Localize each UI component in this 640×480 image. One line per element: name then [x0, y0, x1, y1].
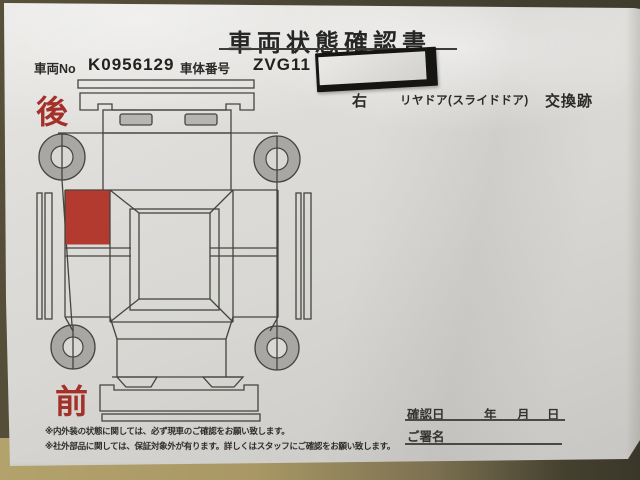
signature-underline: [405, 443, 562, 445]
note-line-2: ※社外部品に関しては、保証対象外が有ります。詳しくはスタッフにご確認をお願い致し…: [45, 440, 395, 452]
damage-side: 右: [352, 90, 367, 111]
date-underline: [405, 419, 565, 421]
vehicle-no-value: K0956129: [88, 55, 174, 75]
front-direction-label: 前: [55, 375, 88, 423]
photo-of-vehicle-condition-sheet: 車両状態確認書 車両No K0956129 車体番号 ZVG11 右 リヤドア(…: [0, 0, 640, 480]
damage-finding: 交換跡: [545, 90, 593, 111]
damage-part: リヤドア(スライドドア): [400, 92, 529, 108]
redaction-sticker: [315, 47, 438, 93]
rear-direction-label: 後: [36, 87, 68, 133]
white-label-sticker: [318, 51, 426, 85]
vehicle-no-label: 車両No: [34, 58, 76, 77]
body-no-label: 車体番号: [180, 58, 230, 77]
note-line-1: ※内外装の状態に関しては、必ず現車のご確認をお願い致します。: [45, 425, 290, 437]
body-no-value: ZVG11: [253, 55, 311, 75]
